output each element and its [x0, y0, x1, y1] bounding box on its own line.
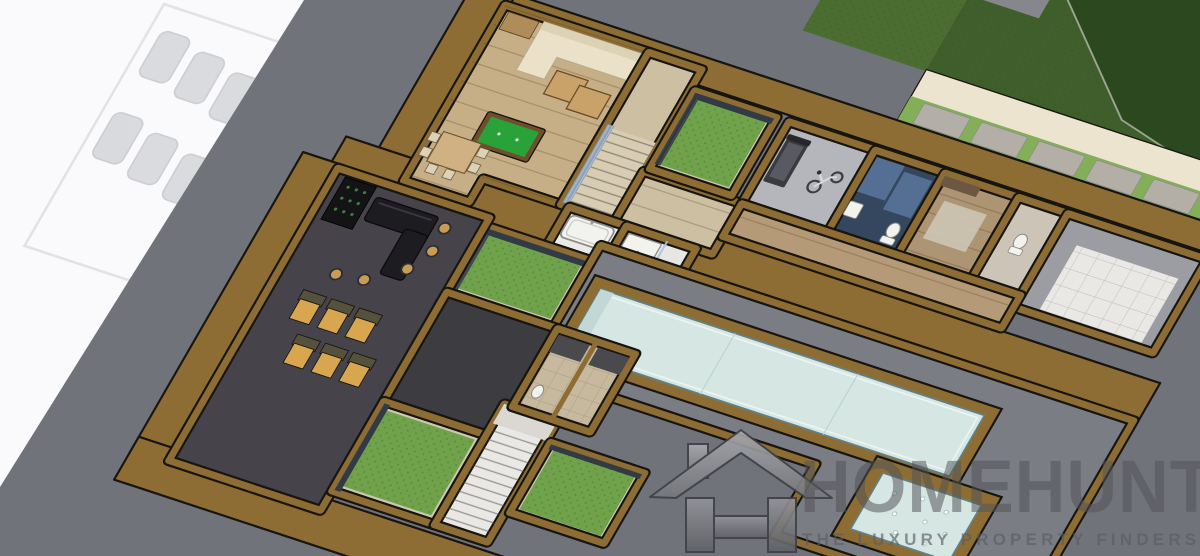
watermark-tagline: THE LUXURY PROPERTY FINDERS	[802, 530, 1200, 549]
floorplan-render: HOMEHUNTS THE LUXURY PROPERTY FINDERS	[0, 0, 1200, 556]
watermark-brand: HOMEHUNTS	[800, 446, 1200, 528]
